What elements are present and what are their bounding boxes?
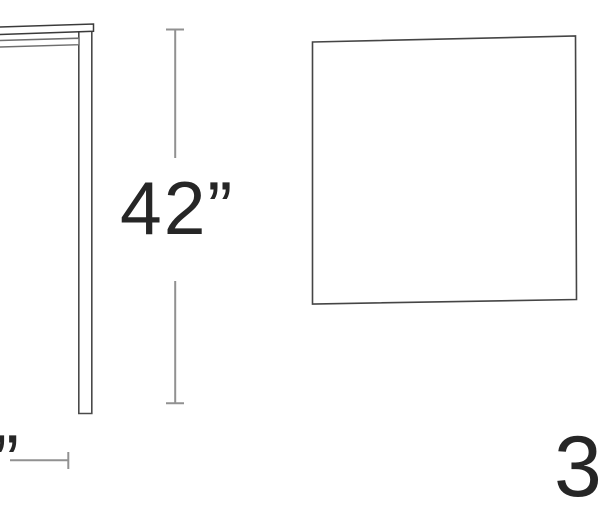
height-dimension: 42” <box>120 30 234 404</box>
height-dimension-label: 42” <box>120 166 234 250</box>
dimension-diagram: 42” ” 3 <box>0 0 600 519</box>
depth-dimension-partial-label: 3 <box>554 419 600 515</box>
table-leg <box>79 31 92 414</box>
table-apron <box>0 38 79 47</box>
width-dimension: ” <box>0 419 68 503</box>
square-panel <box>313 36 577 304</box>
